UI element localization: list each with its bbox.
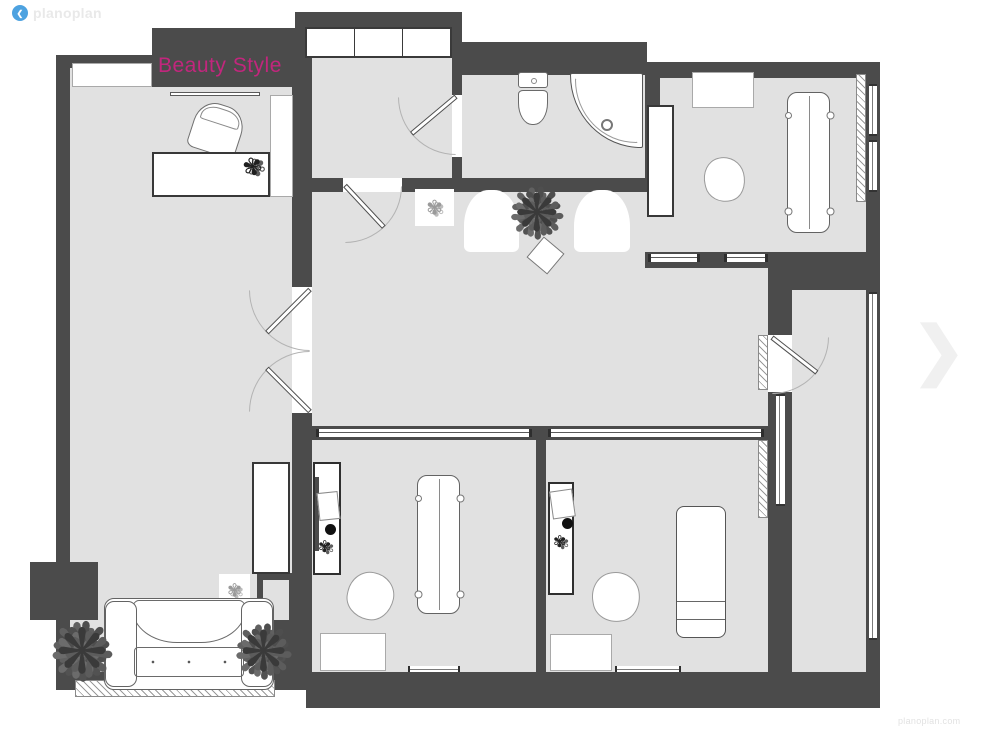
wardrobe-unit xyxy=(305,27,452,58)
workstation-2-plant-icon: ✾ xyxy=(553,535,566,551)
toilet-tank xyxy=(518,72,548,88)
massage-cabinet xyxy=(647,105,674,217)
sliding-panel-corridor xyxy=(776,394,785,506)
workstation-2-tray xyxy=(549,489,576,520)
plant-lounge-left: ❋ xyxy=(56,622,108,684)
radiator-treatment-2 xyxy=(758,440,768,518)
workstation-1-sink xyxy=(325,524,336,535)
massage-table-1 xyxy=(417,475,460,614)
waiting-chair-1 xyxy=(464,190,519,252)
wall-art-glyph: ✾ xyxy=(426,195,443,220)
workstation-2-sink xyxy=(562,518,573,529)
plan-title: Beauty Style xyxy=(158,54,282,78)
workstation-1-plant-icon: ✾ xyxy=(318,540,331,556)
reception-cabinet xyxy=(270,95,293,197)
plant-hall: ❋ xyxy=(515,188,559,240)
wall-between-treatments xyxy=(536,440,546,672)
radiator-massage xyxy=(856,74,866,202)
wall-massage-top xyxy=(645,62,866,78)
wall-reception-right-b xyxy=(292,413,312,440)
floorplan-viewer: ✾ ✾ ❋ ✾ ✾ ✾ ❋ ❋ Beauty Style xyxy=(0,0,990,746)
wall-bathroom-top xyxy=(455,42,647,75)
radiator-corridor-upper xyxy=(758,335,768,390)
lounge-cabinet xyxy=(252,462,290,574)
wall-reception-right-c xyxy=(292,440,312,573)
massage-side-table xyxy=(692,72,754,108)
window-right-1 xyxy=(869,84,877,136)
cabinet-treatment-1 xyxy=(320,633,386,671)
cabinet-treatment-2 xyxy=(550,634,612,671)
window-treatment-2 xyxy=(615,666,681,672)
planoplan-logo-text: planoplan xyxy=(33,5,102,21)
glass-partition-1 xyxy=(316,429,532,437)
workstation-1-tray xyxy=(317,491,341,521)
wall-reception-right-a xyxy=(292,87,312,287)
next-image-chevron-icon[interactable]: ❯ xyxy=(912,318,966,382)
glass-partition-2 xyxy=(548,429,764,437)
wall-shelf xyxy=(170,92,260,96)
sofa-armrest-left xyxy=(105,601,137,687)
workstation-1 xyxy=(313,462,341,575)
treatment-bed xyxy=(676,506,726,638)
window-corridor xyxy=(869,292,877,640)
wall-corridor-left-c xyxy=(768,518,792,672)
wall-corridor-left-a xyxy=(768,290,792,335)
wall-art-hall: ✾ xyxy=(415,189,454,226)
wall-bottom-b xyxy=(306,672,880,708)
glass-partition-massage-2 xyxy=(724,254,768,262)
massage-table-top xyxy=(787,92,830,233)
wall-wardrobe-top xyxy=(295,12,462,28)
wall-corridor-top xyxy=(792,268,866,290)
builtin-closet xyxy=(72,63,152,87)
planoplan-logo-icon: ❮ xyxy=(12,5,28,21)
wall-pillar-left xyxy=(30,562,98,620)
waiting-chair-2 xyxy=(574,190,630,252)
planoplan-logo[interactable]: ❮ planoplan xyxy=(12,5,102,21)
site-watermark: planoplan.com xyxy=(898,716,960,726)
wall-hall-top-a xyxy=(312,178,343,192)
plant-lounge-right: ❋ xyxy=(240,624,287,680)
glass-partition-massage-1 xyxy=(648,254,700,262)
window-treatment-1 xyxy=(408,666,460,672)
window-right-2 xyxy=(869,140,877,192)
